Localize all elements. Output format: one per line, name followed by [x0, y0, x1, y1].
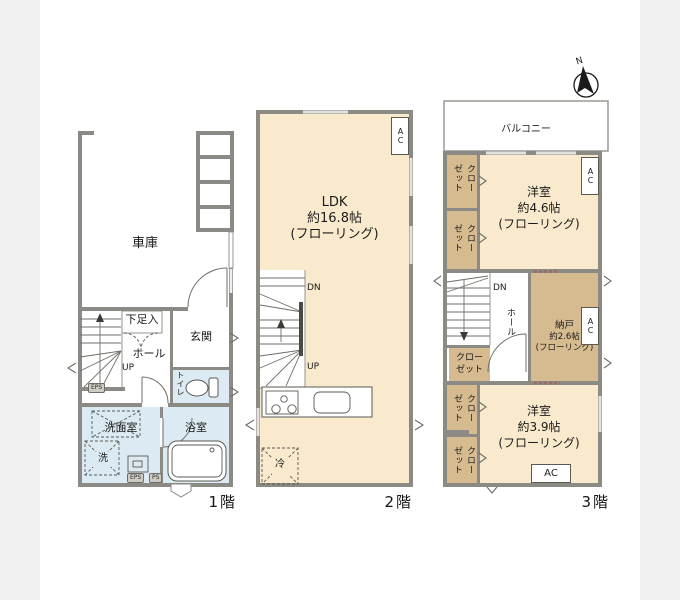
room-top-finish-label: (フローリング) — [471, 218, 607, 232]
kitchen-counter — [262, 387, 372, 417]
floor3-label: 3階 — [560, 494, 610, 511]
closet-mid-label: クローゼット — [449, 352, 490, 376]
storage-finish-label: (フローリング) — [528, 344, 601, 354]
closet-mid-line1: クロー — [456, 353, 483, 363]
ac-unit-room-top: AC — [581, 157, 599, 195]
room-bottom-finish-label: (フローリング) — [471, 437, 607, 451]
ps-tag: PS — [149, 473, 162, 483]
room-top-size-label: 約4.6帖 — [471, 202, 607, 216]
ac-unit-floor2: AC — [391, 117, 409, 155]
refrigerator-label: 冷 — [271, 459, 289, 471]
floor2-plan — [246, 110, 423, 487]
room-bottom-size-label: 約3.9帖 — [471, 421, 607, 435]
floor1-label: 1階 — [187, 494, 237, 511]
closet-d-label: クローゼット — [450, 446, 476, 480]
bathroom-label: 浴室 — [170, 422, 222, 435]
ac-unit-storage: AC — [581, 307, 599, 345]
entrance-label: 玄関 — [178, 331, 224, 344]
eps-tag-upper: EPS — [88, 383, 105, 393]
toilet-label: トイレ — [174, 371, 186, 402]
compass-north-label: N — [575, 56, 584, 68]
hall3-label: ホール — [504, 308, 517, 348]
ldk-name-label: LDK — [264, 196, 405, 211]
stairs2-dn-label: DN — [307, 283, 321, 293]
washer-label: 洗 — [93, 453, 113, 465]
stairs2-up-label: UP — [307, 362, 319, 372]
ldk-finish-label: (フローリング) — [264, 228, 405, 243]
ldk-size-label: 約16.8帖 — [264, 212, 405, 227]
garage-label: 車庫 — [115, 237, 175, 252]
compass-icon: N — [574, 56, 598, 97]
eps-tag-lower: EPS — [127, 473, 144, 483]
hall1-label: ホール — [124, 348, 174, 361]
entrance-window — [229, 269, 233, 293]
bathtub-fixture — [168, 441, 226, 481]
shoe-cabinet-label: 下足入 — [119, 314, 165, 327]
room-bottom-name-label: 洋室 — [471, 405, 607, 419]
floorplan-canvas: N 車庫 下足入 ホール UP 玄関 トイレ 洗面室 洗 浴室 EPS EPS … — [0, 0, 680, 600]
stairs1-up-label: UP — [122, 363, 134, 373]
balcony-label: バルコニー — [486, 124, 566, 136]
ac-unit-room-bottom: AC — [531, 464, 571, 483]
closet-mid-line2: ゼット — [456, 365, 483, 375]
floor2-label: 2階 — [363, 494, 413, 511]
stairs3-dn-label: DN — [493, 283, 507, 293]
toilet-fixture — [186, 378, 218, 397]
washroom-label: 洗面室 — [95, 422, 147, 435]
